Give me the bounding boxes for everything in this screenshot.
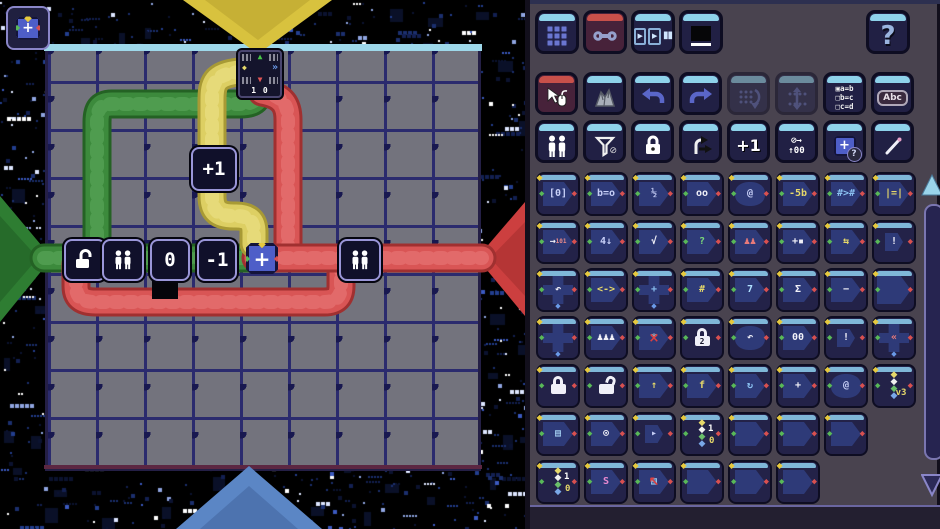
palette-item-r2c5[interactable]: ♟♟◆◆◆ [728, 220, 772, 264]
people-icon [111, 249, 135, 271]
palette-item-r3c6[interactable]: Σ◆◆◆ [776, 268, 820, 312]
green-connector-icon: ◆ [827, 431, 832, 438]
red-connector-icon: ◆ [764, 479, 769, 486]
terrain-tool-button[interactable] [583, 72, 626, 115]
green-connector-icon: ◆ [587, 287, 592, 294]
play-pause-icon: ▶ ▶ ▮▮ [634, 21, 672, 51]
red-connector-icon: ◆ [860, 431, 865, 438]
red-connector-icon: ◆ [716, 239, 721, 246]
green-connector-icon: ◆ [875, 287, 880, 294]
red-connector-icon: ◆ [812, 479, 817, 486]
green-connector-icon: ◆ [827, 239, 832, 246]
green-connector-icon: ◆ [635, 335, 640, 342]
red-connector-icon: ◆ [812, 431, 817, 438]
game-stage: .pk{} .g0{stroke:#246224;stroke-width:29… [0, 0, 525, 529]
green-connector-icon: ◆ [683, 335, 688, 342]
red-connector-icon: ◆ [812, 287, 817, 294]
cycle-part-button[interactable]: ⊘→ ↑00 [775, 120, 818, 163]
palette-item-r2c8[interactable]: !◆◆◆ [872, 220, 916, 264]
palette-item-r2c4[interactable]: ?◆◆◆ [680, 220, 724, 264]
screen-icon [682, 21, 720, 51]
red-connector-icon: ◆ [764, 383, 769, 390]
grid-3x3-icon [538, 21, 576, 51]
palette-item-r2c2[interactable]: 4↓◆◆◆ [584, 220, 628, 264]
green-connector-icon: ◆ [539, 335, 544, 342]
green-connector-icon: ◆ [779, 287, 784, 294]
palette-item-r6c7[interactable]: ◆◆◆ [824, 412, 868, 456]
green-connector-icon: ◆ [779, 479, 784, 486]
cursor-mouse-icon [538, 83, 575, 112]
stripe-decoration [242, 77, 251, 84]
palette-item-r5c7[interactable]: @◆◆◆ [824, 364, 868, 408]
palette-item-r2c3[interactable]: √◆◆◆ [632, 220, 676, 264]
tile-plus-one-label: +1 [203, 158, 226, 180]
red-connector-icon: ◆ [274, 255, 280, 263]
green-connector-icon: ◆ [244, 255, 250, 263]
palette-item-r1c5[interactable]: @◆◆◆ [728, 172, 772, 216]
tile-minus-one[interactable]: -1 [197, 239, 237, 281]
green-connector-icon: ◆ [731, 431, 736, 438]
palette-item-r7c2[interactable]: S◆◆◆ [584, 460, 628, 504]
red-connector-icon: ◆ [860, 335, 865, 342]
cycle-line: ⊘→ [791, 136, 802, 146]
red-connector-icon: ◆ [716, 191, 721, 198]
green-connector-icon: ◆ [779, 335, 784, 342]
red-connector-icon: ◆ [812, 383, 817, 390]
palette-item-r6c6[interactable]: ◆◆◆ [776, 412, 820, 456]
stripe-decoration [269, 54, 278, 61]
exit-north-arrow-icon: ▲ [258, 53, 263, 61]
green-connector-icon: ◆ [635, 191, 640, 198]
red-connector-icon: ◆ [908, 239, 913, 246]
exit-counter-tile[interactable]: ▲ ◆ » ▼ 1 0 [238, 50, 282, 98]
pen-tool-button[interactable] [871, 120, 914, 163]
palette-item-r4c7[interactable]: !◆◆◆ [824, 316, 868, 360]
green-connector-icon: ◆ [779, 383, 784, 390]
green-connector-icon: ◆ [875, 383, 880, 390]
red-connector-icon: ◆ [572, 287, 577, 294]
increment-part-button[interactable]: +1 [727, 120, 770, 163]
mini-plus-chip-icon: + ◆ ◆ ◆ [16, 17, 40, 40]
green-connector-icon: ◆ [539, 479, 544, 486]
rule-line: □b=c [835, 93, 853, 102]
scrollbar-thumb[interactable] [924, 204, 940, 460]
tile-people-2[interactable] [339, 239, 381, 281]
green-connector-icon: ◆ [635, 383, 640, 390]
red-connector-icon: ◆ [860, 191, 865, 198]
green-connector-icon: ◆ [827, 287, 832, 294]
red-connector-icon: ◆ [764, 287, 769, 294]
palette-item-r2c7[interactable]: ⇆◆◆◆ [824, 220, 868, 264]
green-connector-icon: ◆ [635, 479, 640, 486]
blue-connector-icon: ◆ [651, 303, 656, 310]
green-connector-icon: ◆ [14, 24, 20, 32]
funnel-icon: ⊘ [586, 131, 623, 160]
palette-item-r1c2[interactable]: b=o◆◆◆ [584, 172, 628, 216]
blue-connector-icon: ◆ [891, 351, 896, 358]
grid-hole [152, 279, 178, 299]
palette-item-r3c5[interactable]: 7◆◆◆ [728, 268, 772, 312]
rules-checklist-button[interactable]: ▣a=b □b=c □c=d [823, 72, 866, 115]
palette-item-r5c1[interactable]: ◆◆◆ [536, 364, 580, 408]
green-connector-icon: ◆ [635, 431, 640, 438]
redo-button[interactable] [679, 72, 722, 115]
mini-chip: + ? [834, 136, 856, 156]
green-connector-icon: ◆ [587, 479, 592, 486]
chip-question-icon: + ? [826, 131, 863, 160]
people-part-button[interactable] [535, 120, 578, 163]
screen-underline [691, 43, 711, 46]
turns-part-button[interactable] [679, 120, 722, 163]
undo-button[interactable] [631, 72, 674, 115]
undo-arrow-icon [634, 83, 671, 112]
red-connector-icon: ◆ [668, 335, 673, 342]
panel-bottom-edge [530, 505, 940, 529]
green-connector-icon: ◆ [587, 335, 592, 342]
palette-item-r3c1[interactable]: ↶◆◆◆◆ [536, 268, 580, 312]
palette-item-r5c5[interactable]: ↻◆◆◆ [728, 364, 772, 408]
red-connector-icon: ◆ [620, 431, 625, 438]
red-connector-icon: ◆ [668, 287, 673, 294]
palette-item-r3c2[interactable]: <->◆◆◆ [584, 268, 628, 312]
palette-item-r4c1[interactable]: ◆◆◆◆ [536, 316, 580, 360]
yellow-connector-icon: ◆ [24, 14, 32, 24]
palette-item-r5c4[interactable]: f◆◆◆ [680, 364, 724, 408]
green-connector-icon: ◆ [827, 191, 832, 198]
palette-item-r3c7[interactable]: −◆◆◆ [824, 268, 868, 312]
palette-item-r3c3[interactable]: +◆◆◆◆ [632, 268, 676, 312]
cycle-icon: ⊘→ ↑00 [778, 131, 815, 160]
red-connector-icon: ◆ [572, 239, 577, 246]
palette-item-r5c6[interactable]: +◆◆◆ [776, 364, 820, 408]
people-icon [348, 249, 372, 271]
display-button[interactable] [679, 10, 723, 54]
red-connector-icon: ◆ [620, 479, 625, 486]
red-connector-icon: ◆ [860, 383, 865, 390]
red-connector-icon: ◆ [908, 191, 913, 198]
palette-item-r4c4[interactable]: 2◆◆◆ [680, 316, 724, 360]
green-connector-icon: ◆ [779, 431, 784, 438]
stripe-decoration [269, 77, 278, 84]
play-icon: ▶ [648, 28, 660, 45]
exit-south-arrow-icon: ▼ [258, 76, 263, 84]
red-connector-icon: ◆ [764, 191, 769, 198]
play-icon: ▶ [634, 28, 646, 45]
green-connector-icon: ◆ [875, 239, 880, 246]
green-connector-icon: ◆ [875, 335, 880, 342]
exit-counter-value: 1 0 [251, 87, 268, 95]
red-connector-icon: ◆ [572, 191, 577, 198]
palette-item-r6c1[interactable]: ▤◆◆◆ [536, 412, 580, 456]
red-connector-icon: ◆ [668, 479, 673, 486]
abc-label-icon: Abc [877, 90, 908, 106]
screen-black-area [691, 26, 711, 41]
blue-connector-icon: ◆ [555, 351, 560, 358]
select-tool-button[interactable] [535, 72, 578, 115]
green-connector-icon: ◆ [827, 335, 832, 342]
palette-item-r6c2[interactable]: ⊙◆◆◆ [584, 412, 628, 456]
palette-item-r5c2[interactable]: ◆◆◆ [584, 364, 628, 408]
scrollbar-up-button[interactable] [921, 172, 940, 202]
question-badge: ? [847, 147, 862, 162]
green-connector-icon: ◆ [779, 239, 784, 246]
right-panel: ▶ ▶ ▮▮ ? [525, 0, 940, 529]
green-connector-icon: ◆ [779, 191, 784, 198]
palette-item-r4c5[interactable]: ↶◆◆◆ [728, 316, 772, 360]
red-connector-icon: ◆ [716, 479, 721, 486]
green-connector-icon: ◆ [683, 431, 688, 438]
red-connector-icon: ◆ [716, 431, 721, 438]
palette-item-r7c1[interactable]: ◆◆◆◆10◆◆◆ [536, 460, 580, 504]
plus-one-label: +1 [736, 136, 761, 155]
tile-zero[interactable]: 0 [150, 239, 190, 281]
wrench-icon [586, 21, 624, 51]
shift-rows-button[interactable] [775, 72, 818, 115]
red-connector-icon: ◆ [716, 383, 721, 390]
palette-item-r5c8[interactable]: ◆◆◆◆v3◆◆◆ [872, 364, 916, 408]
green-connector-icon: ◆ [539, 239, 544, 246]
chip-unknown-button[interactable]: + ? [823, 120, 866, 163]
green-connector-icon: ◆ [827, 383, 832, 390]
green-connector-icon: ◆ [539, 191, 544, 198]
red-connector-icon: ◆ [860, 239, 865, 246]
palette-item-r6c3[interactable]: ▸◆◆◆ [632, 412, 676, 456]
green-connector-icon: ◆ [683, 479, 688, 486]
rule-line: □c=d [835, 102, 853, 111]
red-connector-icon: ◆ [764, 335, 769, 342]
tile-zero-label: 0 [164, 249, 175, 271]
palette-item-r7c3[interactable]: ▤↖◆◆◆ [632, 460, 676, 504]
green-connector-icon: ◆ [683, 239, 688, 246]
green-connector-icon: ◆ [683, 383, 688, 390]
selected-part-button[interactable]: + ◆ ◆ ◆ [6, 6, 50, 50]
red-connector-icon: ◆ [668, 191, 673, 198]
red-connector-icon: ◆ [812, 191, 817, 198]
palette-item-r2c6[interactable]: +▪◆◆◆ [776, 220, 820, 264]
green-connector-icon: ◆ [539, 431, 544, 438]
red-connector-icon: ◆ [620, 383, 625, 390]
red-connector-icon: ◆ [572, 431, 577, 438]
red-connector-icon: ◆ [764, 239, 769, 246]
green-connector-icon: ◆ [731, 479, 736, 486]
green-connector-icon: ◆ [635, 239, 640, 246]
red-connector-icon: ◆ [620, 239, 625, 246]
green-connector-icon: ◆ [539, 383, 544, 390]
red-connector-icon: ◆ [620, 191, 625, 198]
tile-unlock[interactable] [64, 239, 106, 281]
plus-chip-body: + ◆ ◆ ◆ [246, 243, 278, 274]
filter-off-button[interactable]: ⊘ [583, 120, 626, 163]
red-connector-icon: ◆ [764, 431, 769, 438]
green-connector-icon: ◆ [539, 287, 544, 294]
rule-line: ▣a=b [835, 84, 853, 93]
palette-item-r4c8[interactable]: «◆◆◆◆ [872, 316, 916, 360]
palette-item-r3c8[interactable]: ◆◆◆ [872, 268, 916, 312]
text-label-button[interactable]: Abc [871, 72, 914, 115]
scrollbar-down-button[interactable] [921, 472, 940, 502]
red-connector-icon: ◆ [572, 383, 577, 390]
red-connector-icon: ◆ [812, 335, 817, 342]
red-connector-icon: ◆ [668, 239, 673, 246]
question-mark-icon: ? [880, 21, 895, 51]
palette-item-r2c1[interactable]: →101◆◆◆ [536, 220, 580, 264]
lock-icon [634, 131, 671, 160]
red-connector-icon: ◆ [668, 431, 673, 438]
cycle-line: ↑00 [788, 146, 804, 156]
tile-people-1[interactable] [102, 239, 144, 281]
terrain-icon [586, 83, 623, 112]
blue-connector-icon: ◆ [555, 303, 560, 310]
green-connector-icon: ◆ [731, 383, 736, 390]
red-connector-icon: ◆ [812, 239, 817, 246]
green-connector-icon: ◆ [731, 191, 736, 198]
palette-item-r6c4[interactable]: ◆◆◆◆10◆◆◆ [680, 412, 724, 456]
red-connector-icon: ◆ [36, 24, 42, 32]
palette-item-r1c8[interactable]: |=|◆◆◆ [872, 172, 916, 216]
red-connector-icon: ◆ [908, 287, 913, 294]
yellow-connector-icon: ◆ [258, 240, 266, 250]
red-connector-icon: ◆ [668, 383, 673, 390]
palette-item-r7c4[interactable]: ◆◆◆ [680, 460, 724, 504]
red-connector-icon: ◆ [716, 335, 721, 342]
pause-icon: ▮▮ [663, 31, 672, 41]
red-connector-icon: ◆ [716, 287, 721, 294]
palette-item-r1c3[interactable]: ½◆◆◆ [632, 172, 676, 216]
palette-item-r1c1[interactable]: [0]◆◆◆ [536, 172, 580, 216]
tile-minus-one-label: -1 [206, 249, 229, 271]
palette-item-r7c6[interactable]: ◆◆◆ [776, 460, 820, 504]
unlock-icon [73, 248, 97, 272]
green-connector-icon: ◆ [635, 287, 640, 294]
green-connector-icon: ◆ [731, 287, 736, 294]
palette-item-r1c7[interactable]: #>#◆◆◆ [824, 172, 868, 216]
shift-columns-button[interactable] [727, 72, 770, 115]
pen-icon [874, 131, 911, 160]
green-connector-icon: ◆ [683, 191, 688, 198]
exit-west-diamond-icon: ◆ [242, 64, 247, 72]
red-connector-icon: ◆ [908, 383, 913, 390]
redo-arrow-icon [682, 83, 719, 112]
null-badge: ⊘ [609, 147, 617, 156]
triangle-down-icon [921, 472, 940, 498]
tile-plus-one[interactable]: +1 [191, 147, 237, 191]
exit-east-chevrons-icon: » [272, 63, 278, 73]
green-connector-icon: ◆ [587, 239, 592, 246]
red-connector-icon: ◆ [908, 335, 913, 342]
checklist-icon: ▣a=b □b=c □c=d [826, 83, 863, 112]
plus-chip-label: + [254, 247, 271, 271]
tools-mode-button[interactable] [583, 10, 627, 54]
palette-item-r6c5[interactable]: ◆◆◆ [728, 412, 772, 456]
grid-flip-icon [778, 83, 815, 112]
turn-arrows-icon [682, 131, 719, 160]
levels-menu-button[interactable] [535, 10, 579, 54]
palette-item-r4c3[interactable]: *×◆◆◆ [632, 316, 676, 360]
stripe-decoration [242, 54, 251, 61]
triangle-up-icon [921, 172, 940, 198]
green-connector-icon: ◆ [731, 335, 736, 342]
green-connector-icon: ◆ [683, 287, 688, 294]
palette-item-r1c6[interactable]: -5b◆◆◆ [776, 172, 820, 216]
lock-part-button[interactable] [631, 120, 674, 163]
green-connector-icon: ◆ [587, 383, 592, 390]
grid-rotate-icon [730, 83, 767, 112]
red-connector-icon: ◆ [572, 335, 577, 342]
green-connector-icon: ◆ [587, 431, 592, 438]
tile-plus-chip[interactable]: + ◆ ◆ ◆ [240, 236, 284, 280]
people-icon [538, 131, 575, 160]
help-button[interactable]: ? [866, 10, 910, 54]
palette-item-r5c3[interactable]: ↑◆◆◆ [632, 364, 676, 408]
red-connector-icon: ◆ [620, 335, 625, 342]
palette-item-r4c2[interactable]: ♟♟♟◆◆◆ [584, 316, 628, 360]
palette-item-r1c4[interactable]: oo◆◆◆ [680, 172, 724, 216]
playback-button[interactable]: ▶ ▶ ▮▮ [631, 10, 675, 54]
red-connector-icon: ◆ [572, 479, 577, 486]
palette-item-r7c5[interactable]: ◆◆◆ [728, 460, 772, 504]
red-connector-icon: ◆ [620, 287, 625, 294]
palette-item-r4c6[interactable]: 00◆◆◆ [776, 316, 820, 360]
green-connector-icon: ◆ [587, 191, 592, 198]
green-connector-icon: ◆ [731, 239, 736, 246]
palette-item-r3c4[interactable]: #◆◆◆ [680, 268, 724, 312]
red-connector-icon: ◆ [860, 287, 865, 294]
green-connector-icon: ◆ [875, 191, 880, 198]
